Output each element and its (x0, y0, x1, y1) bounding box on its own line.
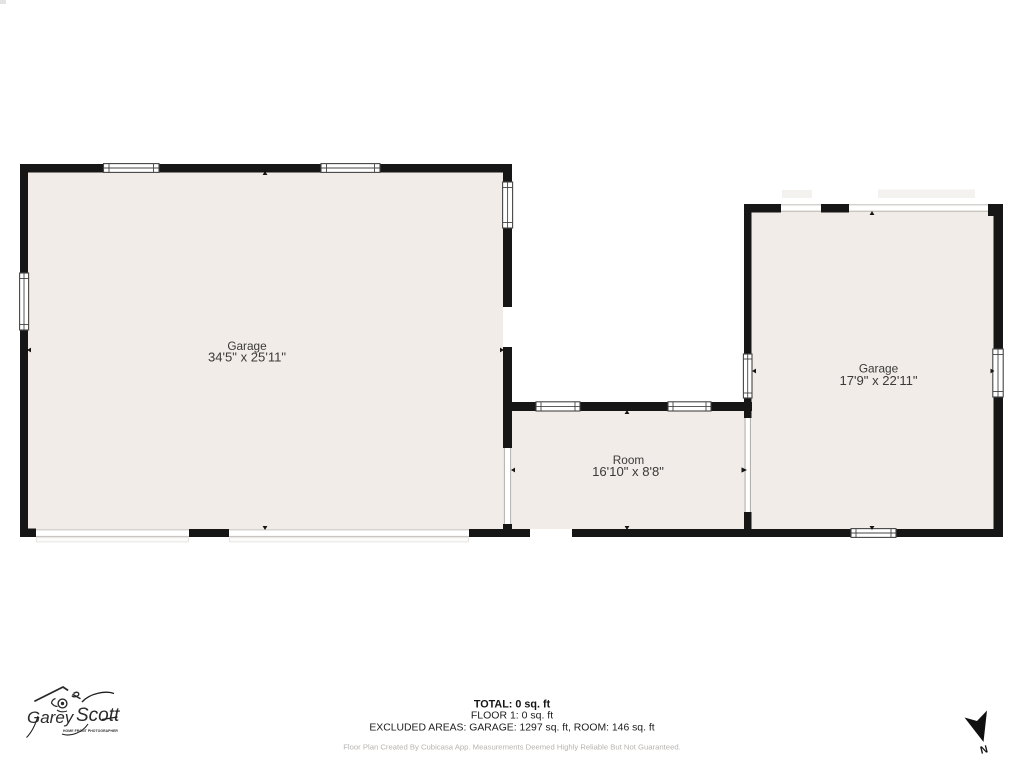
svg-text:Scott: Scott (76, 705, 120, 726)
svg-text:16'10" x 8'8": 16'10" x 8'8" (592, 464, 664, 479)
svg-text:Floor Plan Created By Cubicasa: Floor Plan Created By Cubicasa App. Meas… (343, 743, 681, 752)
svg-text:HOME FRONT PHOTOGRAPHER: HOME FRONT PHOTOGRAPHER (63, 729, 118, 733)
svg-text:34'5" x 25'11": 34'5" x 25'11" (208, 350, 286, 365)
svg-text:FLOOR 1: 0 sq. ft: FLOOR 1: 0 sq. ft (471, 710, 553, 722)
svg-text:TOTAL: 0 sq. ft: TOTAL: 0 sq. ft (474, 698, 551, 710)
svg-text:17'9" x 22'11": 17'9" x 22'11" (839, 373, 917, 388)
svg-text:EXCLUDED AREAS: GARAGE: 1297 s: EXCLUDED AREAS: GARAGE: 1297 sq. ft, ROO… (369, 722, 654, 733)
svg-text:Garey: Garey (27, 708, 75, 727)
